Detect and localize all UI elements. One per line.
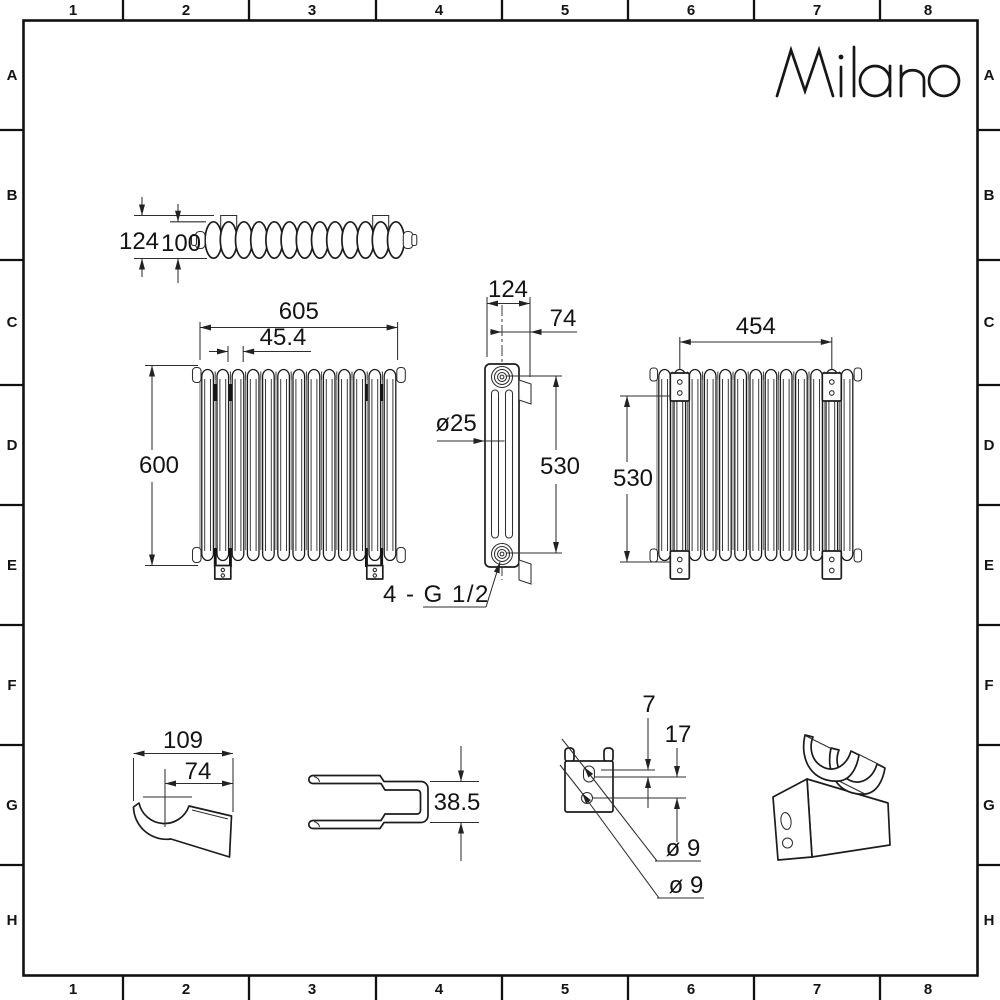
grid-row-label: C <box>984 314 995 331</box>
logo-letter-o <box>929 66 959 96</box>
dimension-front-600: 600 <box>139 366 198 566</box>
grid-row-label: F <box>7 677 16 694</box>
grid-col-label: 2 <box>182 2 190 19</box>
drawing-sheet: 1 2 3 4 5 6 7 8 1 2 3 4 5 6 7 8 A B C D … <box>0 0 1000 1000</box>
dim-text-side-column-diameter: ø25 <box>435 410 476 437</box>
grid-col-label: 7 <box>813 2 821 19</box>
grid-col-label: 6 <box>687 981 695 998</box>
dim-text-bracket-saddle-offset: 74 <box>185 758 212 785</box>
dim-text-side-depth: 124 <box>488 276 528 303</box>
logo-letter-n <box>901 66 924 96</box>
rear-view-end-tab-top-left <box>650 368 658 381</box>
bracket-rear-prong-right <box>604 748 613 762</box>
dimension-bracket-385: 38.5 <box>430 746 480 861</box>
front-view-end-plug-bottom-left <box>193 548 202 563</box>
grid-row-label: A <box>7 67 18 84</box>
bracket-side-view: 109 74 <box>134 727 234 857</box>
dimension-rear-454: 454 <box>680 313 832 370</box>
dim-text-front-width: 605 <box>279 298 319 325</box>
grid-col-label: 1 <box>69 2 77 19</box>
grid-row-label: G <box>6 797 18 814</box>
bracket-rear-plate <box>565 761 613 812</box>
dimension-bracket-17: 17 <box>665 721 692 842</box>
logo-letter-M <box>777 50 833 96</box>
grid-col-label: 5 <box>561 2 569 19</box>
grid-col-label: 7 <box>813 981 821 998</box>
grid-row-label: A <box>984 67 995 84</box>
logo-letter-i-dot <box>839 55 844 60</box>
dimension-bracket-109: 109 <box>134 727 234 812</box>
grid-row-label: F <box>984 677 993 694</box>
dim-text-bracket-slot-offset: 7 <box>642 691 655 718</box>
front-view-upper-brackets <box>214 384 383 401</box>
dimension-bracket-74: 74 <box>165 758 233 785</box>
grid-row-label: D <box>984 437 995 454</box>
radiator-rear-view: 454 530 <box>613 313 862 579</box>
logo-letter-a-bowl <box>860 66 890 96</box>
grid-col-label: 2 <box>182 981 190 998</box>
bracket-3d-plate <box>773 779 812 860</box>
grid-col-label: 1 <box>69 981 77 998</box>
bracket-top-outline <box>309 776 428 829</box>
grid-row-labels-right: A B C D E F G H <box>983 67 995 929</box>
rear-view-end-tab-top-right <box>854 368 862 381</box>
radiator-front-view: 605 45.4 600 <box>139 298 405 579</box>
front-view-end-plug-top-left <box>193 368 202 383</box>
dim-text-slot-diameter: ø 9 <box>666 835 701 862</box>
bracket-isometric-view <box>773 735 890 860</box>
dim-text-bracket-top-width: 38.5 <box>434 789 481 816</box>
dim-text-hole-diameter: ø 9 <box>669 872 704 899</box>
rear-view-bracket-plates <box>670 373 841 579</box>
side-view-body <box>485 364 519 567</box>
brand-logo: Milano <box>777 47 959 96</box>
rear-view-end-tab-bottom-right <box>854 549 862 562</box>
dim-text-top-depth-body: 100 <box>161 230 201 257</box>
dimension-front-pitch: 45.4 <box>209 324 311 362</box>
grid-column-labels-top: 1 2 3 4 5 6 7 8 <box>69 2 932 19</box>
side-view-wall-bracket-bottom <box>519 560 531 584</box>
grid-row-label: D <box>7 437 18 454</box>
dim-text-rear-bracket-spacing-h: 454 <box>736 313 776 340</box>
grid-col-label: 8 <box>924 2 932 19</box>
bracket-3d-ridge-2 <box>858 754 884 767</box>
bracket-side-outline <box>134 803 232 857</box>
dim-text-top-depth-overall: 124 <box>119 228 159 255</box>
grid-col-label: 5 <box>561 981 569 998</box>
dim-text-rear-bracket-spacing-v: 530 <box>613 465 653 492</box>
dimension-side-74: 74 <box>490 305 577 332</box>
grid-col-label: 6 <box>687 2 695 19</box>
connection-callout: 4 - G 1/2 <box>383 562 500 608</box>
side-view-wall-bracket-top <box>519 380 531 404</box>
top-view-column-sections <box>205 222 404 258</box>
grid-row-label: H <box>984 912 995 929</box>
dim-text-front-pitch: 45.4 <box>260 324 307 351</box>
dim-text-bracket-width: 109 <box>163 727 203 754</box>
dim-text-side-bracket-offset: 74 <box>550 305 577 332</box>
grid-column-labels-bottom: 1 2 3 4 5 6 7 8 <box>69 981 932 998</box>
dim-text-side-bracket-spacing: 530 <box>540 453 580 480</box>
dim-text-bracket-hole-spacing: 17 <box>665 721 692 748</box>
grid-row-label: E <box>7 557 17 574</box>
grid-col-label: 3 <box>308 2 316 19</box>
front-view-end-plug-top-right <box>397 368 406 383</box>
grid-row-label: C <box>7 314 18 331</box>
rear-view-end-tab-bottom-left <box>650 549 658 562</box>
bracket-rear-view: 7 17 ø 9 ø 9 <box>560 691 704 899</box>
grid-col-label: 8 <box>924 981 932 998</box>
radiator-side-view: 124 74 ø25 530 4 - G 1/2 <box>383 276 580 608</box>
grid-row-label: B <box>7 187 18 204</box>
grid-col-label: 4 <box>435 2 444 19</box>
radiator-top-view: 124 100 <box>119 197 417 283</box>
dimension-rear-530: 530 <box>613 396 671 562</box>
bracket-rear-prong-left <box>565 748 574 762</box>
dim-text-front-height: 600 <box>139 452 179 479</box>
grid-col-label: 4 <box>435 981 444 998</box>
front-view-end-plug-bottom-right <box>397 548 406 563</box>
dimension-bracket-7: 7 <box>642 691 655 808</box>
front-view-lower-brackets <box>214 548 383 579</box>
grid-row-label: E <box>984 557 994 574</box>
grid-row-label: G <box>983 797 995 814</box>
top-view-end-plug-right-cap <box>412 235 417 246</box>
grid-col-label: 3 <box>308 981 316 998</box>
grid-row-label: B <box>984 187 995 204</box>
grid-row-label: H <box>7 912 18 929</box>
bracket-top-view: 38.5 <box>309 746 481 861</box>
dim-text-connections: 4 - G 1/2 <box>383 581 490 608</box>
technical-drawing-canvas: 1 2 3 4 5 6 7 8 1 2 3 4 5 6 7 8 A B C D … <box>0 0 1000 1000</box>
dimension-side-124: 124 <box>487 276 530 377</box>
grid-row-labels-left: A B C D E F G H <box>6 67 18 929</box>
